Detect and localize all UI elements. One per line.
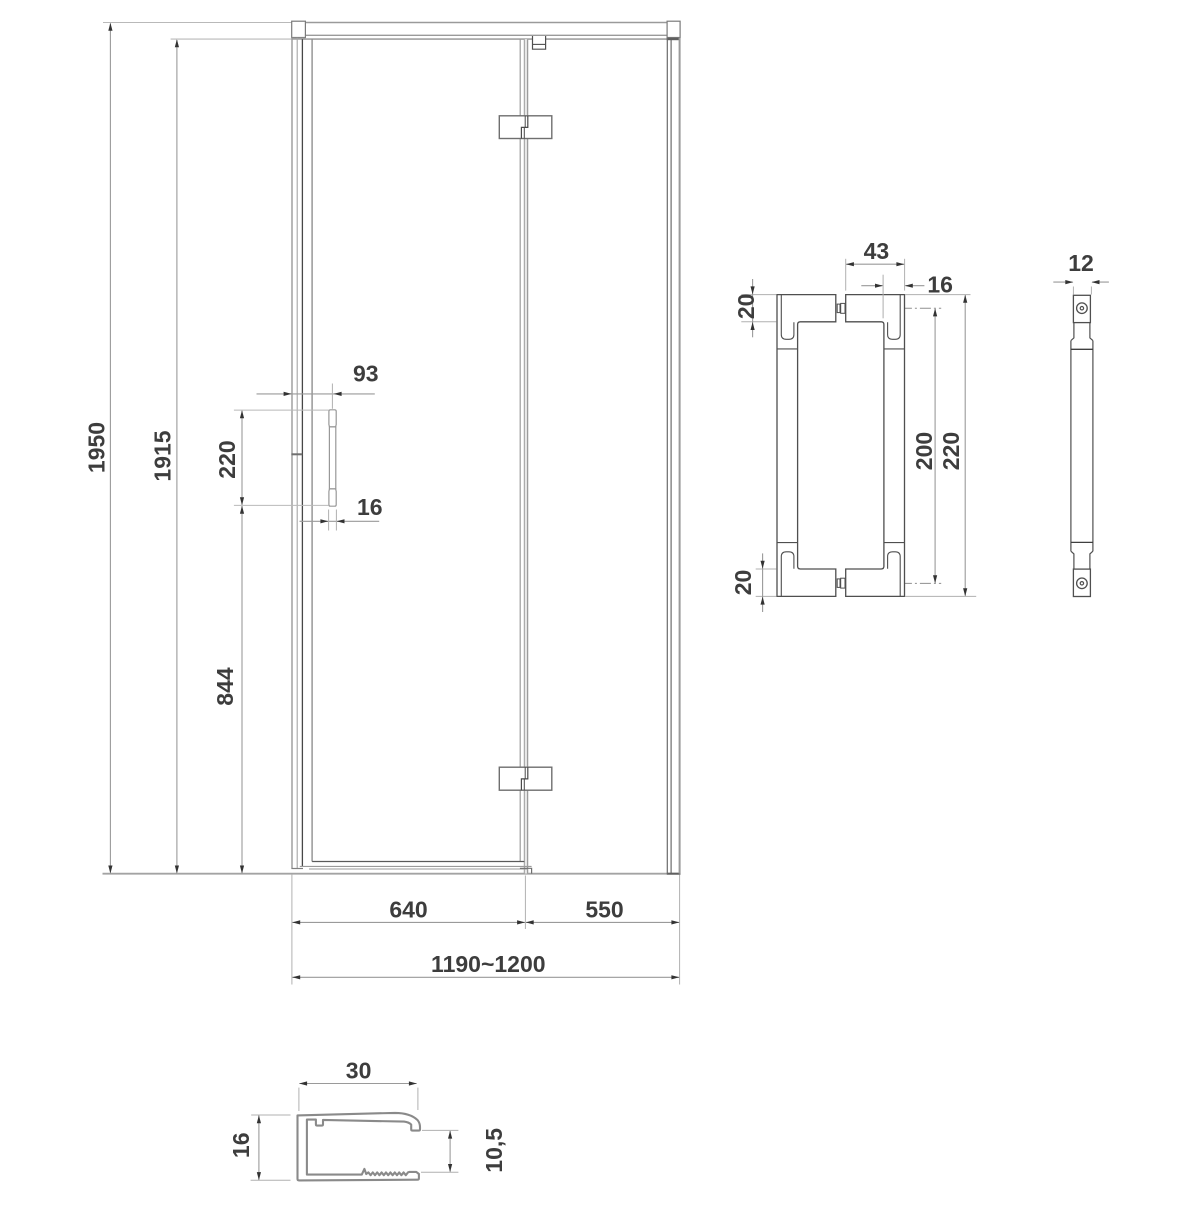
svg-text:220: 220 (214, 440, 240, 478)
svg-text:20: 20 (733, 294, 759, 320)
svg-text:12: 12 (1068, 250, 1094, 276)
svg-text:220: 220 (938, 432, 964, 470)
svg-text:16: 16 (357, 494, 383, 520)
svg-text:93: 93 (353, 361, 379, 387)
svg-text:10,5: 10,5 (481, 1128, 507, 1173)
svg-text:30: 30 (346, 1057, 372, 1083)
svg-text:43: 43 (864, 238, 890, 264)
svg-text:1190~1200: 1190~1200 (431, 951, 546, 977)
svg-text:16: 16 (228, 1133, 254, 1159)
svg-text:200: 200 (911, 432, 937, 470)
svg-text:16: 16 (927, 271, 953, 297)
svg-text:20: 20 (730, 570, 756, 596)
svg-text:1915: 1915 (150, 430, 176, 481)
svg-text:1950: 1950 (84, 422, 110, 473)
svg-text:844: 844 (212, 667, 238, 706)
svg-text:640: 640 (389, 897, 427, 923)
svg-text:550: 550 (585, 896, 623, 922)
